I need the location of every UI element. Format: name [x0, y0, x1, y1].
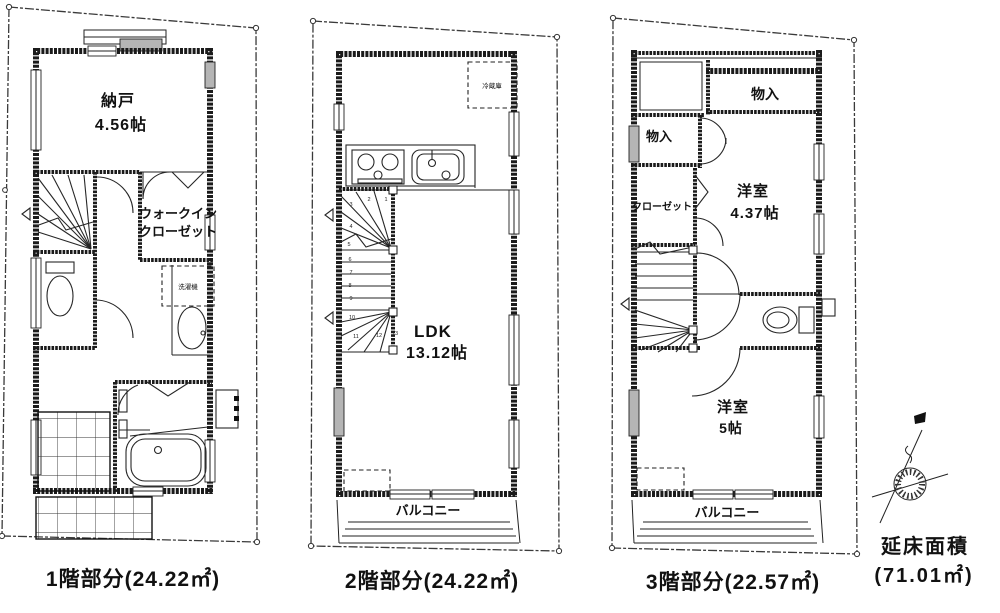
room-label-monoire-left: 物入	[646, 129, 672, 144]
balcony-label-floor2: バルコニー	[396, 503, 461, 518]
floor3-stairs	[633, 242, 697, 352]
room-label-closet: クローゼット	[632, 200, 692, 213]
floor1-plan: 洗濯機 納戸 4.56帖 ウォークイン クローゼット 1階部分(24.22㎡)	[0, 4, 260, 591]
total-area-value: (71.01㎡)	[874, 563, 973, 587]
room-size-nando: 4.56帖	[95, 115, 147, 134]
floor2-kitchen-icon	[346, 145, 514, 190]
stair-number: 3	[349, 202, 352, 208]
floor2-balcony: バルコニー	[337, 500, 520, 543]
stair-number: 13	[392, 331, 398, 337]
compass-icon	[872, 412, 948, 523]
floor1-porch-tiles	[36, 497, 152, 539]
floorplan-page: 洗濯機 納戸 4.56帖 ウォークイン クローゼット 1階部分(24.22㎡)	[0, 0, 1000, 613]
room-label-ldk: LDK	[414, 322, 452, 341]
floor1-washbasin-icon	[178, 307, 206, 349]
floor3-plan: バルコニー 物入 物入 クローゼット 洋室 4.37帖 洋室 5帖 3階部分(2…	[609, 15, 859, 594]
floor1-entry-tiles	[38, 412, 110, 491]
stair-number: 8	[348, 283, 351, 289]
balcony-label-floor3: バルコニー	[695, 505, 760, 520]
room-size-yoshitsu-b: 5帖	[719, 420, 743, 436]
caption-floor1: 1階部分(24.22㎡)	[46, 567, 220, 591]
room-label-yoshitsu-a: 洋室	[737, 182, 769, 200]
caption-floor3: 3階部分(22.57㎡)	[646, 570, 820, 594]
floor2-plan: 冷蔵庫	[308, 18, 561, 593]
floor2-vent-icon	[325, 209, 333, 221]
stair-number: 9	[349, 296, 352, 302]
stair-number: 4	[349, 224, 352, 230]
floor2-storage-dashed-box	[344, 470, 390, 491]
fridge-label: 冷蔵庫	[482, 81, 502, 90]
floor2-fridge-box: 冷蔵庫	[468, 62, 517, 108]
floor3-void-area	[640, 62, 702, 110]
floor2-vent2-icon	[325, 312, 333, 324]
stair-number: 7	[349, 270, 352, 276]
floor3-toilet-icon	[763, 299, 835, 333]
stair-number: 12	[376, 333, 382, 339]
floor3-vent-icon	[621, 298, 629, 310]
stair-number: 6	[348, 257, 351, 263]
floor3-balcony: バルコニー	[632, 500, 823, 543]
room-label-nando: 納戸	[101, 91, 135, 110]
stair-number: 1	[384, 197, 387, 203]
room-label-monoire-top: 物入	[751, 86, 779, 102]
room-label-walkin-1: ウォークイン	[139, 206, 217, 221]
floor3-storage-dashed-box	[637, 468, 684, 490]
stair-number: 10	[349, 315, 355, 321]
room-label-yoshitsu-b: 洋室	[717, 398, 749, 416]
floorplan-drawing: 洗濯機 納戸 4.56帖 ウォークイン クローゼット 1階部分(24.22㎡)	[0, 0, 1000, 613]
stair-number: 5	[347, 242, 350, 248]
caption-floor2: 2階部分(24.22㎡)	[345, 569, 519, 593]
floor1-toilet-icon	[46, 262, 74, 316]
floor1-vent-icon	[22, 208, 30, 220]
stair-number: 11	[353, 334, 359, 340]
floor1-stairs	[36, 175, 93, 249]
total-area-title: 延床面積	[880, 534, 969, 558]
room-size-yoshitsu-a: 4.37帖	[730, 204, 779, 222]
floor1-washer-box: 洗濯機	[162, 266, 214, 306]
washer-label: 洗濯機	[178, 282, 198, 291]
floor1-water-heater-icon	[216, 390, 239, 428]
room-size-ldk: 13.12帖	[406, 343, 468, 362]
floor2-stairs: 1 2 3 4 5 6 7 8 9 10 11 12 13	[339, 186, 398, 354]
room-label-walkin-2: クローゼット	[139, 224, 217, 239]
stair-number: 2	[367, 197, 370, 203]
floor1-bathroom	[119, 390, 208, 486]
